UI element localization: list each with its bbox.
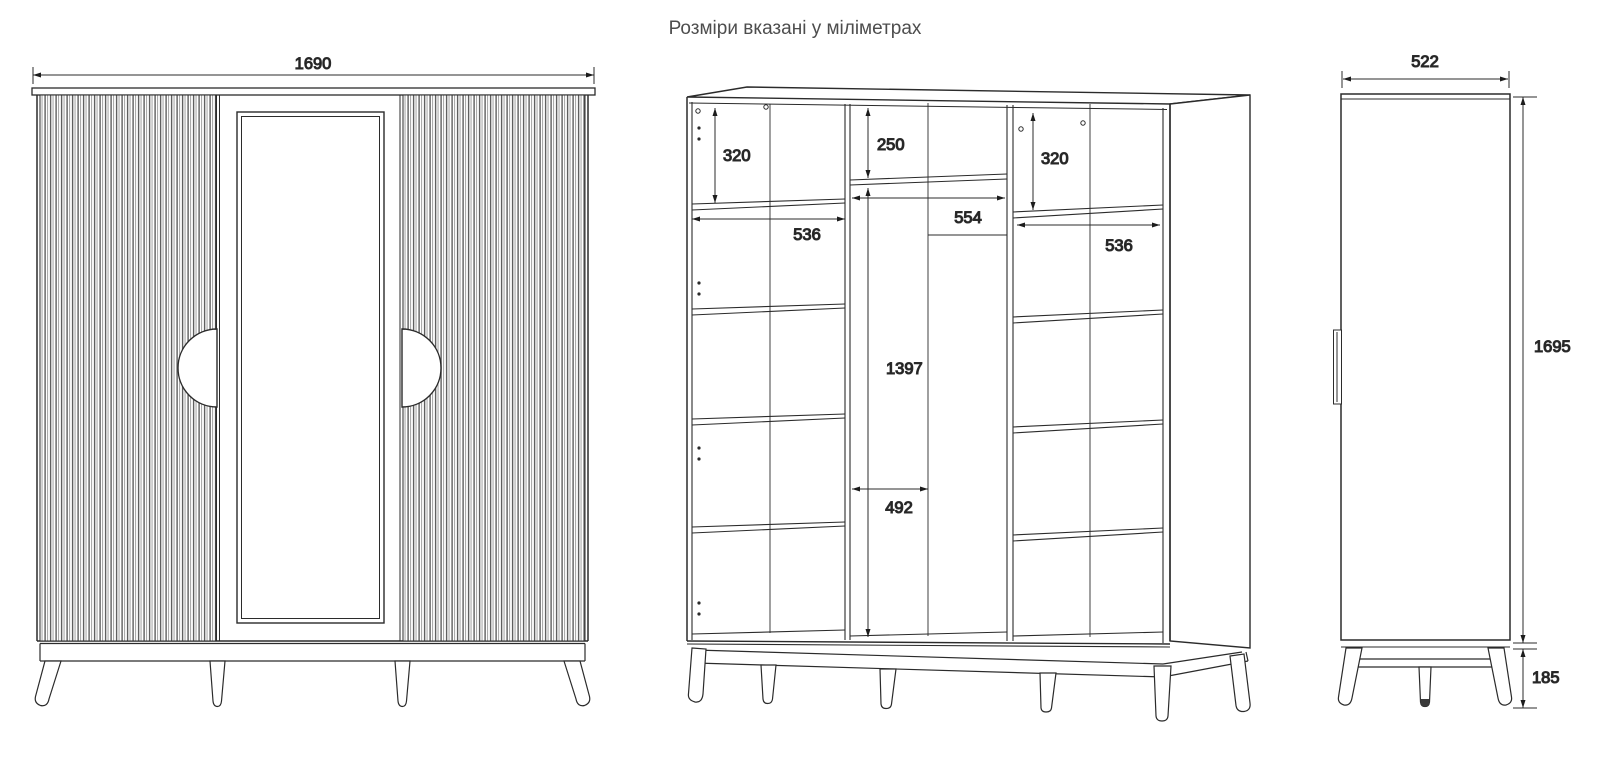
side-middle-leg-foot [1421, 699, 1430, 707]
dim-label-middle-top-width: 554 [954, 209, 982, 227]
dim-internal-middle-top-width [852, 196, 1005, 201]
dim-label-hanging-height: 1397 [886, 360, 923, 378]
front-outer-right-leg [564, 661, 590, 706]
dim-label-right-shelf-width: 536 [1105, 237, 1133, 255]
dim-label-side-depth: 522 [1411, 53, 1439, 71]
side-front-leg [1338, 648, 1362, 705]
dim-label-middle-top-gap: 250 [877, 136, 905, 154]
front-inner-left-leg [210, 661, 225, 707]
dim-internal-left-shelf-width [692, 217, 845, 222]
drawing-canvas: Розміри вказані у міліметрах 1690 [0, 0, 1600, 774]
dim-label-front-width: 1690 [295, 55, 332, 73]
front-mirror-frame [237, 112, 384, 623]
internal-leg-3 [880, 669, 896, 709]
dim-label-right-top-gap: 320 [1041, 150, 1069, 168]
internal-middle-top-shelf [850, 174, 1007, 636]
front-top-panel [32, 88, 595, 95]
internal-left-shelves [692, 199, 845, 634]
dim-internal-hanging-width [852, 487, 928, 492]
dim-internal-hanging-height [866, 188, 871, 637]
internal-leg-4 [1040, 673, 1056, 712]
dim-side-height [1513, 97, 1537, 643]
dim-label-hanging-width: 492 [885, 499, 913, 517]
dim-label-left-shelf-width: 536 [793, 226, 821, 244]
internal-outer-left-leg [688, 648, 706, 702]
dim-internal-middle-top-gap [866, 108, 871, 178]
internal-front-right-leg [1154, 666, 1171, 721]
internal-leg-2 [761, 665, 776, 704]
drawing-title: Розміри вказані у міліметрах [669, 18, 922, 39]
dim-side-depth [1342, 71, 1509, 88]
dim-label-side-height: 1695 [1534, 338, 1571, 356]
side-back-leg [1488, 648, 1512, 705]
side-door-handle [1334, 330, 1342, 404]
side-base-rail [1356, 659, 1494, 667]
side-body-panel [1341, 94, 1510, 640]
dim-label-side-leg-height: 185 [1532, 669, 1560, 687]
side-view: 522 1695 [1334, 53, 1571, 708]
internal-structure-view: 320 250 320 536 554 [687, 87, 1250, 721]
wardrobe-dimension-drawing: Розміри вказані у міліметрах 1690 [0, 0, 1600, 774]
dim-label-left-top-gap: 320 [723, 147, 751, 165]
internal-right-side-panel [1170, 95, 1250, 648]
dim-internal-left-top-gap [713, 108, 718, 203]
internal-right-shelves [1013, 205, 1163, 636]
front-inner-right-leg [395, 661, 410, 707]
internal-back-right-leg [1230, 654, 1250, 712]
dim-internal-right-shelf-width [1017, 223, 1160, 228]
internal-top-panel [687, 87, 1250, 104]
front-outer-left-leg [35, 661, 61, 706]
dim-internal-right-top-gap [1031, 113, 1036, 210]
front-base-rail [40, 644, 585, 662]
front-view: 1690 [32, 55, 595, 707]
